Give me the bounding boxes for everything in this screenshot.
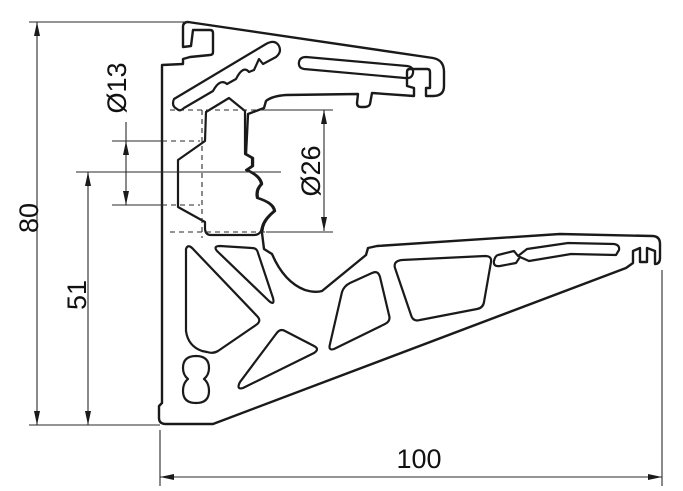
technical-drawing-canvas: 80 51 Ø13 Ø26 100 (0, 0, 683, 491)
dim-d26-arrow-bottom (321, 217, 327, 231)
center-chamber (178, 98, 274, 235)
dim-100-arrow-right (648, 474, 662, 480)
dim-d26-arrow-top (321, 110, 327, 124)
dim-51-arrow-bottom (85, 411, 91, 425)
cap-cavity-right (299, 57, 413, 78)
dim-51-label: 51 (62, 280, 92, 310)
dim-80-label: 80 (14, 203, 44, 233)
profile-drawing: 80 51 Ø13 Ø26 100 (0, 0, 683, 491)
dim-d13-arrow-bottom (123, 191, 129, 205)
dim-51-arrow-top (85, 172, 91, 186)
dim-100-arrow-left (160, 474, 174, 480)
web-hole-triangle-upper (216, 246, 274, 303)
dim-80-arrow-bottom (34, 411, 40, 425)
dim-d13-arrow-top (123, 141, 129, 155)
arm-hole-sliver (494, 243, 619, 266)
screw-channel (183, 356, 209, 403)
profile-outline (159, 22, 660, 424)
dim-100-label: 100 (396, 444, 441, 474)
dim-d26-label: Ø26 (296, 145, 326, 196)
arm-hole-quad-1 (330, 272, 390, 349)
web-hole-triangle-left (186, 246, 259, 353)
dim-80-arrow-top (34, 22, 40, 36)
web-hole-triangle-mid (239, 330, 317, 388)
arm-hole-quad-2 (395, 256, 491, 320)
dim-d13-label: Ø13 (102, 62, 132, 113)
